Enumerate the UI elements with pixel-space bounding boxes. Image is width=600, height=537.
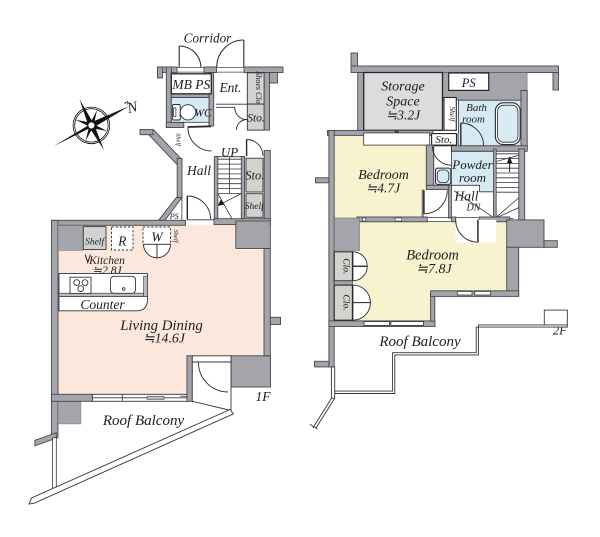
svg-text:≒14.6J: ≒14.6J [143,331,186,346]
svg-text:Corridor: Corridor [184,31,233,46]
svg-text:Shelf: Shelf [85,237,105,248]
svg-text:PS: PS [169,212,179,221]
svg-text:Clo.: Clo. [340,295,350,311]
svg-text:PS: PS [461,76,477,90]
svg-text:≒3.2J: ≒3.2J [386,108,421,123]
svg-text:Hall: Hall [453,189,478,204]
svg-text:W: W [151,229,164,244]
svg-text:MB PS: MB PS [171,77,210,92]
svg-text:Storage: Storage [381,80,425,95]
svg-text:≒7.8J: ≒7.8J [416,262,452,277]
svg-text:Shoes Clo.: Shoes Clo. [254,71,263,105]
svg-text:Bath: Bath [466,102,487,114]
svg-text:Shelf: Shelf [448,106,457,122]
svg-text:Shelf: Shelf [245,201,265,212]
svg-text:1F: 1F [256,389,272,404]
svg-text:Roof Balcony: Roof Balcony [378,334,461,350]
svg-text:Sto.: Sto. [245,169,264,183]
svg-text:≒4.7J: ≒4.7J [366,181,401,196]
svg-text:R: R [117,234,127,249]
svg-text:Ent.: Ent. [218,80,241,95]
svg-text:Roof Balcony: Roof Balcony [102,413,185,429]
svg-text:Hall: Hall [186,163,211,178]
svg-text:Sto.: Sto. [435,134,452,146]
svg-text:Sto.: Sto. [247,113,265,125]
svg-text:Shelf: Shelf [175,133,182,147]
svg-text:WC: WC [194,108,212,120]
svg-text:Shelf: Shelf [172,230,179,244]
svg-text:Clo.: Clo. [340,258,350,274]
svg-text:Counter: Counter [80,297,125,312]
svg-text:room: room [459,170,486,185]
